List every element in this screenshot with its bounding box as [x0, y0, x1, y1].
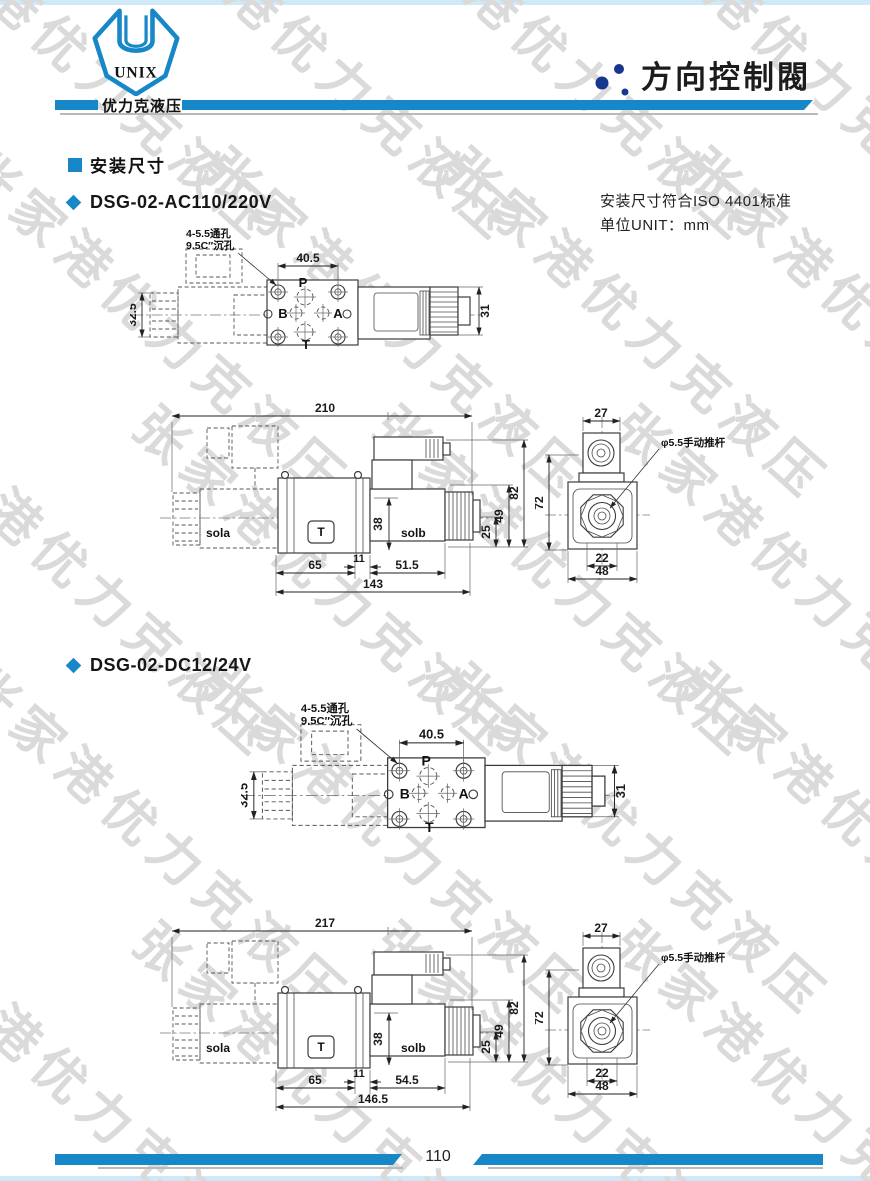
- solenoid-a-label: sola: [206, 526, 230, 540]
- dim-label: 38: [371, 517, 385, 531]
- port-label-p: P: [422, 752, 431, 768]
- standard-note-line1: 安装尺寸符合ISO 4401标准: [600, 190, 791, 214]
- logo-text: UNIX: [114, 65, 157, 82]
- square-bullet-icon: [68, 158, 82, 172]
- page-number: 110: [408, 1148, 468, 1166]
- dim-label: 49: [492, 509, 506, 523]
- drawing-ac-top-view: 40.5 32.5 31 4-5.5通孔 9.5C″沉孔 P B A T: [130, 225, 500, 380]
- dim-label: 38: [371, 1032, 385, 1046]
- header-rule: [60, 113, 818, 115]
- dim-label: 40.5: [419, 727, 444, 742]
- header-bar: [182, 100, 813, 110]
- dim-label: 82: [507, 486, 521, 500]
- dim-label: 48: [595, 1079, 609, 1093]
- t-port-label: T: [317, 525, 325, 539]
- dim-label: 31: [478, 304, 492, 318]
- footer-rule-left: [98, 1167, 403, 1169]
- diamond-bullet-icon: [66, 658, 82, 674]
- hole-note-line2: 9.5C″沉孔: [186, 239, 235, 252]
- model-title-dc: DSG-02-DC12/24V: [90, 655, 252, 676]
- catalog-page: 张家港优力克液压张家港优力克液压张家港优力克液压张家港优力克液压张家港优力克液压…: [0, 0, 870, 1181]
- dim-label: 54.5: [395, 1073, 419, 1087]
- model-heading-ac: DSG-02-AC110/220V: [68, 192, 272, 213]
- dim-label: 210: [315, 401, 335, 415]
- standard-note: 安装尺寸符合ISO 4401标准 单位UNIT：mm: [600, 190, 791, 238]
- dim-label: 22: [595, 551, 609, 565]
- footer-rule-right: [488, 1167, 823, 1169]
- dim-label: 31: [613, 784, 628, 798]
- section-heading: 安装尺寸: [68, 152, 166, 177]
- dim-label: 11: [353, 1068, 365, 1080]
- dim-label: 143: [363, 577, 383, 591]
- model-heading-dc: DSG-02-DC12/24V: [68, 655, 252, 676]
- dim-label: 48: [595, 564, 609, 578]
- dim-label: 217: [315, 916, 335, 930]
- brand-bar-left: [55, 100, 98, 110]
- dim-label: 32.5: [130, 303, 139, 327]
- port-label-a: A: [459, 786, 469, 802]
- drawing-dc-side-view: 217 sola T solb 38 25 49 82 11 65 5: [160, 915, 545, 1115]
- footer-bar-right: [473, 1154, 823, 1165]
- dim-label: 11: [353, 553, 365, 565]
- end-view-linework: [545, 417, 650, 573]
- dim-label: 65: [308, 1073, 322, 1087]
- model-title-ac: DSG-02-AC110/220V: [90, 192, 272, 213]
- port-label-a: A: [333, 306, 343, 321]
- dim-label: 25: [479, 525, 493, 539]
- dim-label: 51.5: [395, 558, 419, 572]
- solenoid-b-label: solb: [401, 1041, 426, 1055]
- title-dots-icon: [594, 58, 634, 100]
- standard-note-line2: 单位UNIT：mm: [600, 214, 791, 238]
- solenoid-a-label: sola: [206, 1041, 230, 1055]
- dim-label: 72: [535, 1011, 546, 1025]
- hole-note-line1: 4-5.5通孔: [186, 227, 231, 240]
- dim-label: 27: [594, 406, 608, 420]
- port-label-b: B: [278, 306, 287, 321]
- port-label-b: B: [400, 786, 410, 802]
- page-title: 方向控制閥: [641, 52, 811, 97]
- manual-pin-note: φ5.5手动推杆: [661, 951, 726, 964]
- dim-label: 72: [535, 496, 546, 510]
- dim-label: 49: [492, 1024, 506, 1038]
- dim-label: 25: [479, 1040, 493, 1054]
- section-title: 安装尺寸: [90, 152, 166, 177]
- dim-label: 22: [595, 1066, 609, 1080]
- drawing-dc-end-view: 27 72 22 48 φ5.5手动推杆: [535, 920, 770, 1115]
- t-port-label: T: [317, 1040, 325, 1054]
- dim-label: 146.5: [358, 1092, 388, 1106]
- dim-label: 82: [507, 1001, 521, 1015]
- dim-label: 65: [308, 558, 322, 572]
- port-label-p: P: [299, 275, 308, 290]
- dim-label: 40.5: [296, 251, 320, 265]
- dim-label: 27: [594, 921, 608, 935]
- unix-logo: UNIX: [90, 8, 182, 96]
- manual-pin-note: φ5.5手动推杆: [661, 436, 726, 449]
- dim-label: 32.5: [241, 783, 250, 808]
- diamond-bullet-icon: [66, 195, 82, 211]
- drawing-dc-top-view: 40.5 32.5 31 4-5.5通孔 9.5C″沉孔 P B A T: [241, 699, 637, 865]
- hole-note-line2: 9.5C″沉孔: [301, 714, 353, 728]
- port-label-t: T: [302, 337, 310, 352]
- hole-note-line1: 4-5.5通孔: [301, 702, 350, 715]
- end-view-linework: [545, 932, 650, 1088]
- footer-bar-left: [55, 1154, 402, 1165]
- drawing-ac-side-view: 210 sola T solb 38 25 49 82 11 65 5: [160, 400, 545, 600]
- drawing-ac-end-view: 27 72 22 48 φ5.5手动推杆: [535, 405, 770, 600]
- solenoid-b-label: solb: [401, 526, 426, 540]
- port-label-t: T: [425, 819, 434, 835]
